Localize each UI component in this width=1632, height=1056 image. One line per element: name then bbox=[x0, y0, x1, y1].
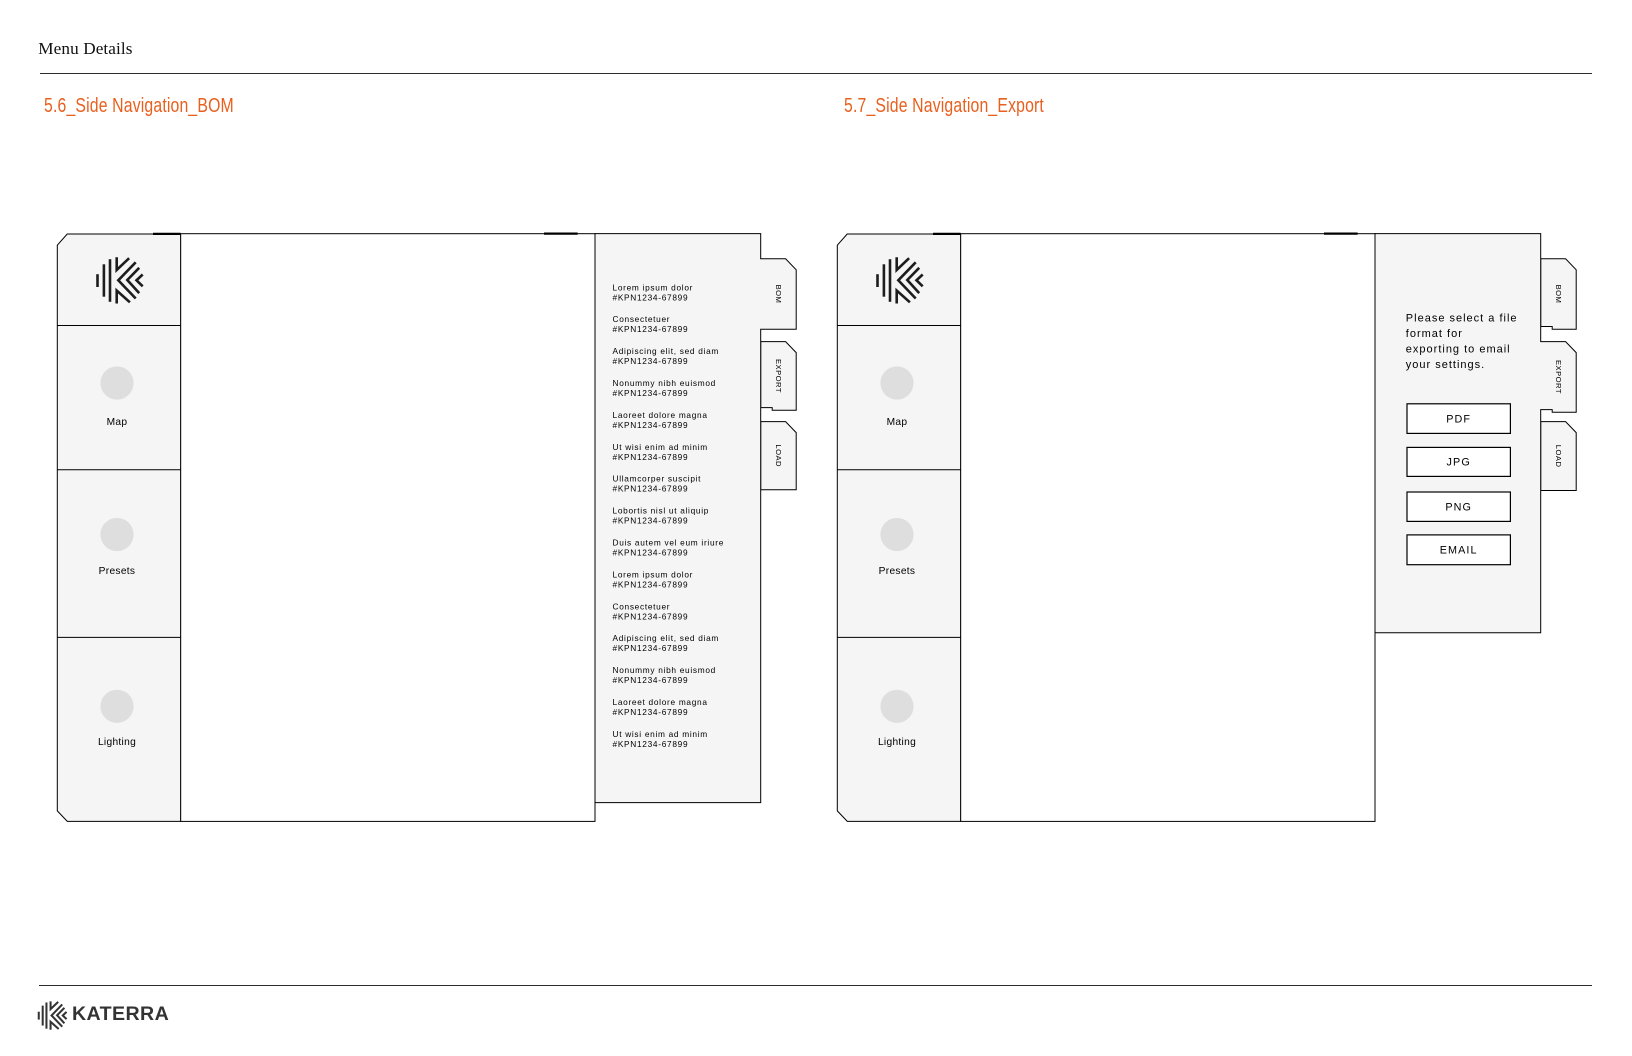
svg-text:Laoreet dolore magna: Laoreet dolore magna bbox=[613, 697, 708, 707]
svg-text:#KPN1234-67899: #KPN1234-67899 bbox=[613, 675, 689, 685]
svg-text:Ullamcorper suscipit: Ullamcorper suscipit bbox=[613, 474, 702, 484]
svg-text:LOAD: LOAD bbox=[1554, 445, 1563, 468]
svg-text:Laoreet dolore magna: Laoreet dolore magna bbox=[613, 410, 708, 420]
svg-text:Nonummy nibh euismod: Nonummy nibh euismod bbox=[613, 665, 716, 675]
svg-text:#KPN1234-67899: #KPN1234-67899 bbox=[613, 643, 689, 653]
svg-text:#KPN1234-67899: #KPN1234-67899 bbox=[613, 707, 689, 717]
svg-text:Ut wisi enim ad minim: Ut wisi enim ad minim bbox=[613, 729, 708, 739]
svg-text:#KPN1234-67899: #KPN1234-67899 bbox=[613, 611, 689, 621]
svg-text:EMAIL: EMAIL bbox=[1440, 545, 1478, 557]
svg-text:Adipiscing elit, sed diam: Adipiscing elit, sed diam bbox=[613, 633, 720, 643]
svg-text:#KPN1234-67899: #KPN1234-67899 bbox=[613, 484, 689, 494]
svg-text:Lorem ipsum dolor: Lorem ipsum dolor bbox=[613, 569, 694, 579]
svg-text:Lighting: Lighting bbox=[878, 737, 916, 748]
svg-text:exporting to email: exporting to email bbox=[1406, 344, 1511, 356]
svg-text:#KPN1234-67899: #KPN1234-67899 bbox=[613, 324, 689, 334]
svg-text:BOM: BOM bbox=[1554, 285, 1563, 304]
svg-text:#KPN1234-67899: #KPN1234-67899 bbox=[613, 388, 689, 398]
svg-text:PNG: PNG bbox=[1445, 502, 1472, 514]
svg-text:your settings.: your settings. bbox=[1406, 359, 1485, 371]
svg-text:Presets: Presets bbox=[879, 566, 916, 577]
svg-text:#KPN1234-67899: #KPN1234-67899 bbox=[613, 516, 689, 526]
svg-text:#KPN1234-67899: #KPN1234-67899 bbox=[613, 356, 689, 366]
svg-text:Lighting: Lighting bbox=[98, 737, 136, 748]
svg-text:Map: Map bbox=[107, 417, 128, 428]
svg-text:EXPORT: EXPORT bbox=[774, 359, 783, 393]
svg-text:BOM: BOM bbox=[774, 285, 783, 304]
svg-text:#KPN1234-67899: #KPN1234-67899 bbox=[613, 739, 689, 749]
svg-text:#KPN1234-67899: #KPN1234-67899 bbox=[613, 452, 689, 462]
svg-text:Lobortis nisl ut aliquip: Lobortis nisl ut aliquip bbox=[613, 506, 710, 516]
svg-text:#KPN1234-67899: #KPN1234-67899 bbox=[613, 420, 689, 430]
svg-text:format for: format for bbox=[1406, 328, 1463, 340]
svg-text:Consectetuer: Consectetuer bbox=[613, 601, 671, 611]
svg-text:#KPN1234-67899: #KPN1234-67899 bbox=[613, 548, 689, 558]
svg-text:Consectetuer: Consectetuer bbox=[613, 314, 671, 324]
svg-text:PDF: PDF bbox=[1446, 413, 1471, 425]
svg-text:Adipiscing elit, sed diam: Adipiscing elit, sed diam bbox=[613, 346, 720, 356]
svg-text:Map: Map bbox=[887, 417, 908, 428]
svg-text:EXPORT: EXPORT bbox=[1554, 360, 1563, 394]
svg-text:Lorem ipsum dolor: Lorem ipsum dolor bbox=[613, 282, 694, 292]
svg-text:Please select a file: Please select a file bbox=[1406, 313, 1518, 325]
svg-text:Nonummy nibh euismod: Nonummy nibh euismod bbox=[613, 378, 716, 388]
svg-text:LOAD: LOAD bbox=[774, 444, 783, 467]
svg-text:Ut wisi enim ad minim: Ut wisi enim ad minim bbox=[613, 442, 708, 452]
svg-text:Duis autem vel eum iriure: Duis autem vel eum iriure bbox=[613, 538, 725, 548]
svg-text:#KPN1234-67899: #KPN1234-67899 bbox=[613, 579, 689, 589]
svg-text:#KPN1234-67899: #KPN1234-67899 bbox=[613, 292, 689, 302]
svg-text:JPG: JPG bbox=[1447, 457, 1471, 469]
svg-text:Presets: Presets bbox=[99, 566, 136, 577]
